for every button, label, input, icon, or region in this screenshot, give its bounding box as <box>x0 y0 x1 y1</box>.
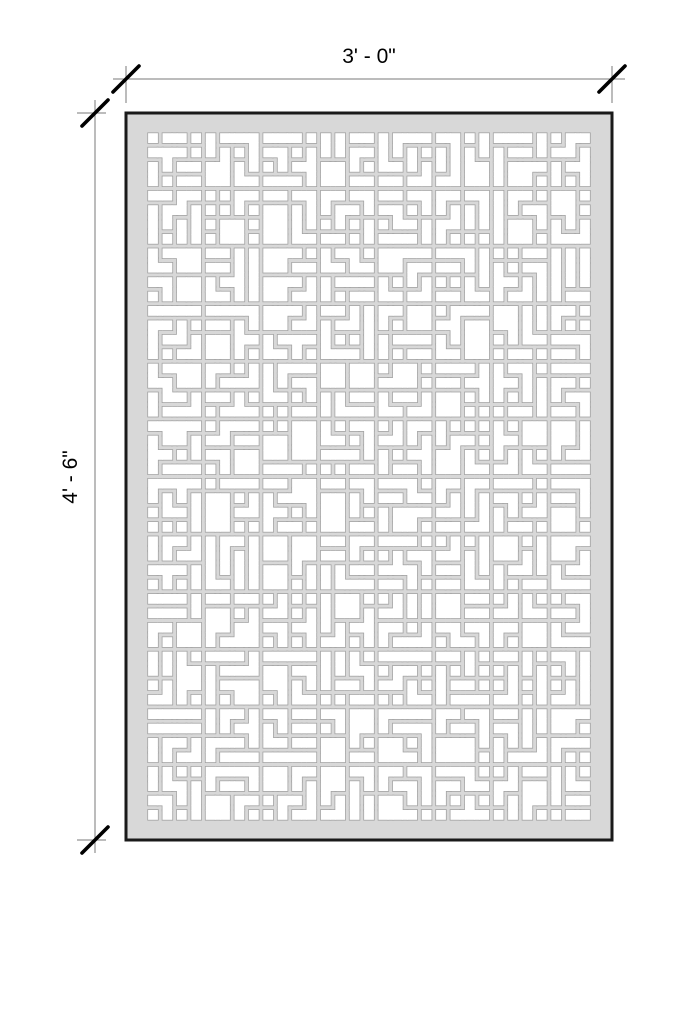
width-dimension-label: 3' - 0" <box>342 45 395 68</box>
drawing-sheet: 3' - 0" 4' - 6" <box>0 0 683 1024</box>
panel-elevation-drawing: 3' - 0" 4' - 6" <box>0 0 683 1024</box>
height-dimension-label: 4' - 6" <box>59 450 82 503</box>
